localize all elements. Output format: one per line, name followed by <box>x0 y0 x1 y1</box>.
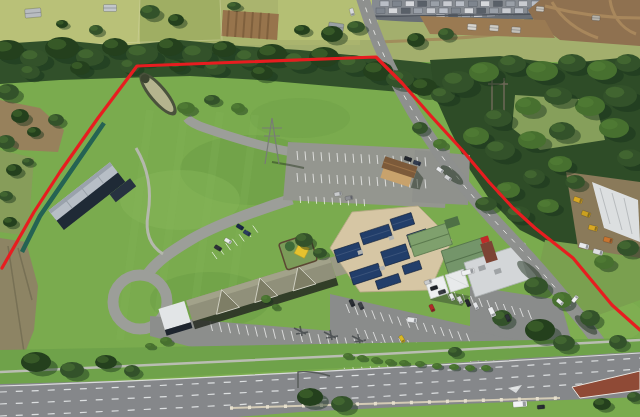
estate-house-roof <box>481 1 490 7</box>
estate-house-roof <box>443 1 452 7</box>
estate-house-roof <box>401 8 410 14</box>
tree-highlight <box>498 183 511 191</box>
tree-highlight <box>560 55 575 64</box>
aerial-photo-canvas <box>0 0 640 417</box>
tree-highlight <box>577 98 594 108</box>
tree-highlight <box>601 120 618 130</box>
tree-highlight <box>551 123 565 132</box>
tree-highlight <box>28 128 36 133</box>
tree-highlight <box>433 363 439 366</box>
shed-roof <box>467 24 476 31</box>
tree-highlight <box>610 336 620 343</box>
estate-house-roof <box>456 1 465 7</box>
tree-highlight <box>416 361 422 364</box>
tree-highlight <box>596 256 607 263</box>
estate-house-roof <box>380 1 389 7</box>
tree-highlight <box>214 42 227 50</box>
tree-highlight <box>555 336 567 344</box>
tree-highlight <box>57 21 64 25</box>
tree-highlight <box>433 88 446 96</box>
tree-highlight <box>413 79 427 88</box>
tree-highlight <box>348 22 358 28</box>
tree-highlight <box>262 296 268 300</box>
tree-highlight <box>528 63 546 73</box>
tree-highlight <box>520 132 535 141</box>
tree-highlight <box>333 397 345 405</box>
tree-highlight <box>62 363 75 371</box>
tree-highlight <box>466 365 472 368</box>
tree-highlight <box>525 170 537 178</box>
tree-highlight <box>449 348 457 353</box>
tree-highlight <box>228 3 236 7</box>
tree-highlight <box>295 26 304 31</box>
tree-highlight <box>161 338 168 342</box>
estate-house-roof <box>493 1 502 7</box>
tree-highlight <box>594 399 604 405</box>
tree-highlight <box>500 56 515 65</box>
estate-house-roof <box>389 8 398 14</box>
shed-roof <box>592 15 600 21</box>
tree-highlight <box>471 64 488 74</box>
estate-house-roof <box>426 8 435 14</box>
tree-highlight <box>169 15 178 21</box>
tree-highlight <box>90 26 98 31</box>
tree-highlight <box>311 49 328 59</box>
tree-highlight <box>617 55 631 64</box>
estate-house-roof <box>506 1 515 7</box>
tree-highlight <box>582 311 593 319</box>
shed-roof <box>536 6 544 12</box>
tree-highlight <box>48 39 67 50</box>
estate-house-roof <box>405 1 414 7</box>
tree-highlight <box>517 98 531 107</box>
tree-highlight <box>408 34 418 41</box>
tree-highlight <box>358 355 364 358</box>
tree-highlight <box>142 6 153 13</box>
tree-highlight <box>365 63 382 73</box>
tree-highlight <box>589 62 606 72</box>
tree-highlight <box>232 104 240 109</box>
tree-highlight <box>22 66 33 73</box>
tree-highlight <box>296 234 306 241</box>
tree-highlight <box>439 29 448 35</box>
estate-house-roof <box>393 1 402 7</box>
estate-house-roof <box>376 8 385 14</box>
estate-house-roof <box>468 1 477 7</box>
estate-house-roof <box>519 1 528 7</box>
tree-highlight <box>386 359 392 362</box>
estate-house-roof <box>464 8 473 14</box>
estate-house-roof <box>477 8 486 14</box>
tree-highlight <box>12 110 22 117</box>
tree-highlight <box>237 50 251 59</box>
shed-roof <box>489 25 498 32</box>
tree-highlight <box>413 123 422 129</box>
tree-highlight <box>477 198 489 205</box>
shed-roof <box>104 5 117 12</box>
tree-highlight <box>482 365 488 368</box>
tree-highlight <box>619 150 633 159</box>
tree-highlight <box>104 39 118 48</box>
tree-highlight <box>97 356 109 363</box>
tree-highlight <box>259 46 276 56</box>
aerial-photo <box>0 0 640 417</box>
estate-house-roof <box>452 8 461 14</box>
tree-highlight <box>4 218 12 223</box>
tree-highlight <box>72 62 83 69</box>
tree-highlight <box>526 278 539 287</box>
tree-highlight <box>465 128 479 137</box>
tree-highlight <box>23 159 30 163</box>
tree-highlight <box>619 241 631 249</box>
tree-highlight <box>205 96 214 101</box>
tree-highlight <box>273 304 277 307</box>
tree-highlight <box>178 103 188 109</box>
tree-highlight <box>372 357 378 360</box>
shed-roof <box>511 27 520 34</box>
car <box>513 401 527 408</box>
tree-highlight <box>184 46 201 56</box>
tree-highlight <box>527 321 544 332</box>
estate-house-roof <box>430 1 439 7</box>
tree-highlight <box>550 157 563 165</box>
tree-highlight <box>450 364 456 367</box>
tree-highlight <box>0 192 8 197</box>
tree-highlight <box>444 73 462 84</box>
tree-highlight <box>299 389 313 398</box>
tree-highlight <box>628 393 636 398</box>
tree-highlight <box>23 354 40 364</box>
tree-highlight <box>606 87 625 98</box>
tree-highlight <box>546 88 561 97</box>
tree-highlight <box>253 67 265 74</box>
tree-highlight <box>22 50 37 59</box>
tree-highlight <box>7 165 16 171</box>
tree-highlight <box>539 200 551 207</box>
estate-house-roof <box>489 8 498 14</box>
estate-house-roof <box>502 8 511 14</box>
estate-house-roof <box>439 8 448 14</box>
tree-highlight <box>400 360 406 363</box>
estate-house-roof <box>414 8 423 14</box>
tree-highlight <box>434 140 442 145</box>
tilled-field <box>221 10 279 40</box>
tree-highlight <box>486 110 501 119</box>
estate-house-roof <box>515 8 524 14</box>
tree-highlight <box>344 353 350 356</box>
tree-highlight <box>146 343 152 346</box>
tree-highlight <box>323 27 335 35</box>
tree-highlight <box>125 366 134 372</box>
car <box>537 405 545 410</box>
car <box>407 317 418 323</box>
tree-highlight <box>159 39 173 48</box>
tree-highlight <box>49 115 58 121</box>
tree-highlight <box>487 142 504 152</box>
tree-highlight <box>128 46 146 56</box>
tree-highlight <box>314 249 322 254</box>
tree-highlight <box>78 49 93 58</box>
tree-highlight <box>122 60 133 67</box>
tree-highlight <box>567 176 578 183</box>
estate-house-roof <box>418 1 427 7</box>
shed-roof <box>25 8 42 18</box>
